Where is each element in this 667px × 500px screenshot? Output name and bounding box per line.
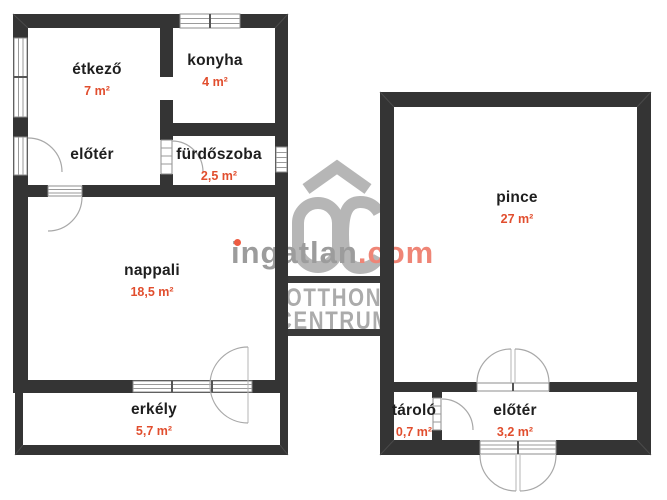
room-name: fürdőszoba xyxy=(176,146,262,164)
room-area: 18,5 m² xyxy=(124,285,180,299)
room-label-erkely: erkély 5,7 m² xyxy=(131,401,177,438)
room-name: előtér xyxy=(70,146,113,164)
room-name: erkély xyxy=(131,401,177,419)
room-name: előtér xyxy=(493,402,536,420)
room-label-konyha: konyha 4 m² xyxy=(187,52,242,89)
room-label-tarolo: tároló 0,7 m² xyxy=(392,402,436,439)
room-label-furdoszoba: fürdőszoba 2,5 m² xyxy=(176,146,262,183)
room-label-pince: pince 27 m² xyxy=(496,189,537,226)
room-name: tároló xyxy=(392,402,436,420)
room-area: 5,7 m² xyxy=(131,424,177,438)
room-area: 0,7 m² xyxy=(392,425,436,439)
room-area: 2,5 m² xyxy=(176,169,262,183)
room-label-nappali: nappali 18,5 m² xyxy=(124,262,180,299)
room-labels: étkező 7 m² konyha 4 m² előtér fürdőszob… xyxy=(0,0,667,500)
room-area: 7 m² xyxy=(72,84,121,98)
room-name: nappali xyxy=(124,262,180,280)
room-label-etkezo: étkező 7 m² xyxy=(72,61,121,98)
room-area: 4 m² xyxy=(187,75,242,89)
room-area: 3,2 m² xyxy=(493,425,536,439)
room-name: konyha xyxy=(187,52,242,70)
room-label-eloter-upper: előtér xyxy=(70,146,113,164)
room-label-eloter-basement: előtér 3,2 m² xyxy=(493,402,536,439)
room-name: pince xyxy=(496,189,537,207)
floor-plan-page: OTTHON CENTRUM ingatlan.com xyxy=(0,0,667,500)
room-name: étkező xyxy=(72,61,121,79)
room-area: 27 m² xyxy=(496,212,537,226)
